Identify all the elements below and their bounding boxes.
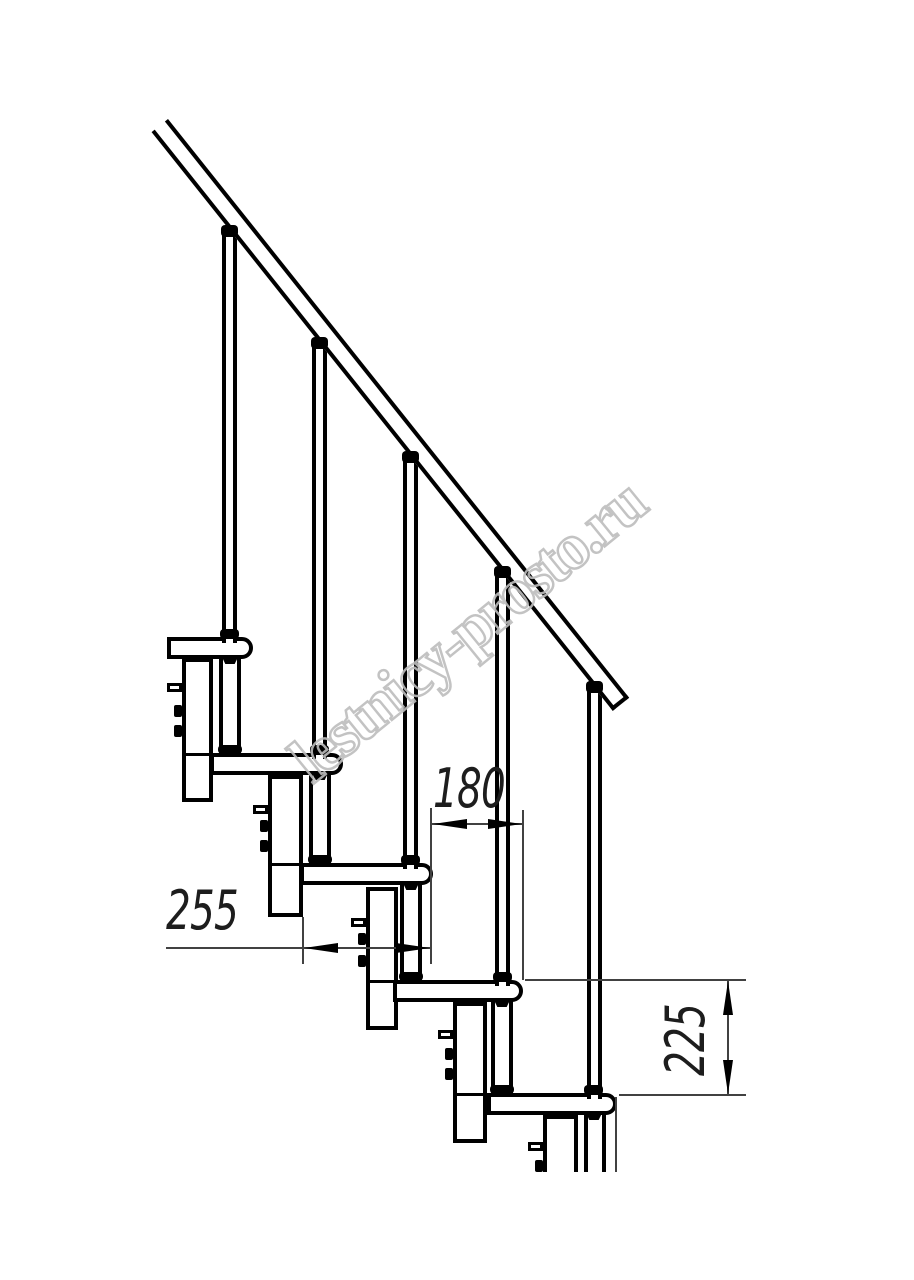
fixing-plate	[253, 805, 268, 814]
extension-line	[615, 1097, 617, 1172]
baluster-top-fitting	[402, 451, 419, 463]
arrowhead	[396, 943, 430, 953]
baluster-base-fitting	[401, 855, 420, 865]
baluster-1	[222, 231, 237, 643]
arrowhead	[488, 819, 522, 829]
bolt	[174, 725, 182, 737]
dimension-line-255	[166, 947, 432, 949]
extension-line	[302, 917, 304, 964]
column-seam-1	[182, 753, 213, 756]
front-post-5	[584, 1111, 606, 1172]
baluster-base-fitting	[493, 972, 512, 982]
arrowhead	[723, 981, 733, 1015]
bolt	[358, 933, 366, 945]
post-base-fitting	[490, 1085, 514, 1094]
support-column-5	[543, 1115, 578, 1172]
baluster-base-fitting	[220, 629, 239, 639]
bolt	[445, 1048, 453, 1060]
bolt	[358, 955, 366, 967]
bolt	[260, 820, 268, 832]
baluster-top-fitting	[221, 225, 238, 237]
post-base-fitting	[218, 745, 242, 754]
bolt	[535, 1160, 543, 1172]
arrowhead	[433, 819, 467, 829]
baluster-5	[587, 687, 602, 1099]
support-column-1	[182, 658, 213, 802]
fixing-plate	[167, 683, 182, 692]
support-column-4	[453, 1002, 487, 1143]
column-seam-4	[453, 1093, 487, 1096]
extension-line	[525, 979, 746, 981]
arrowhead	[723, 1060, 733, 1094]
arrowhead	[304, 943, 338, 953]
baluster-top-fitting	[586, 681, 603, 693]
extension-line	[522, 810, 524, 980]
fixing-plate	[528, 1142, 543, 1151]
front-post-3	[400, 883, 422, 986]
bolt	[445, 1068, 453, 1080]
baluster-2	[312, 343, 327, 759]
staircase-drawing: 180 255 225 lestnicy-prosto.ru	[0, 0, 914, 1280]
dimension-label-depth: 255	[166, 884, 238, 938]
fixing-plate	[438, 1030, 453, 1039]
tread-1	[167, 637, 253, 659]
post-base-fitting	[399, 972, 423, 981]
bolt	[174, 705, 182, 717]
baluster-base-fitting	[584, 1085, 603, 1095]
extension-line	[430, 808, 432, 964]
dimension-label-run: 180	[433, 762, 505, 816]
column-seam-2	[268, 863, 303, 866]
post-base-fitting	[308, 855, 332, 864]
dimension-label-rise: 225	[659, 997, 715, 1083]
support-column-3	[366, 887, 398, 1030]
front-post-1	[219, 654, 241, 759]
bolt	[260, 840, 268, 852]
baluster-top-fitting	[311, 337, 328, 349]
fixing-plate	[351, 918, 366, 927]
front-post-4	[491, 998, 513, 1099]
